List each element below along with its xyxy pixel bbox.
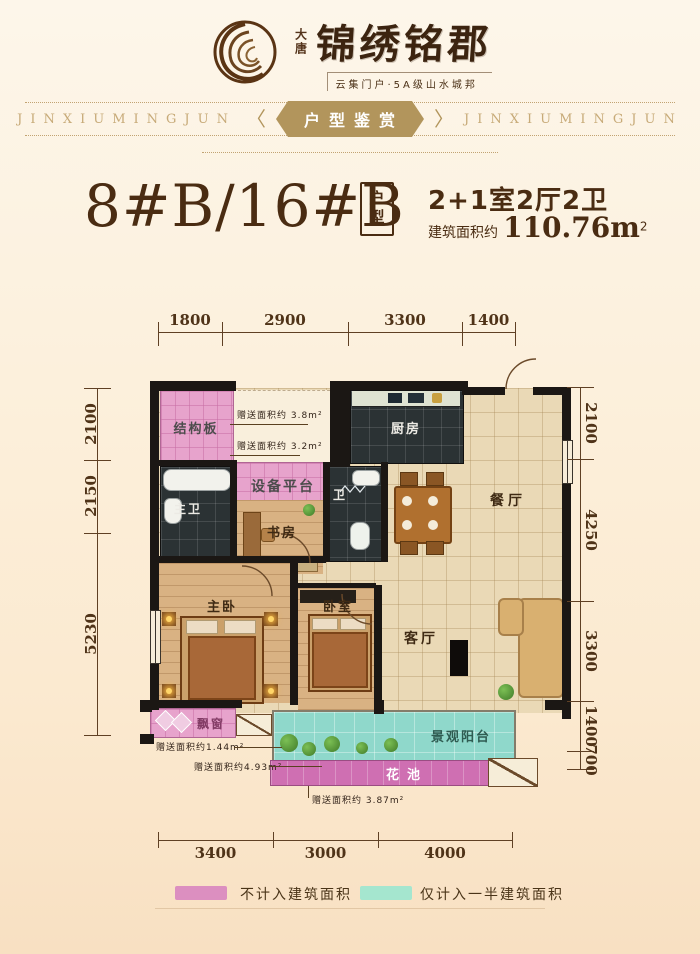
brand-tagline: 云集门户·5A级山水城邦 (327, 72, 492, 91)
room-label-structure-board: 结构板 (160, 418, 232, 437)
dimension-label: 3000 (273, 844, 378, 862)
annotation-leader-line (230, 455, 300, 456)
brand-name: 锦绣铭郡 (313, 12, 493, 70)
kitchen-appliance (432, 393, 442, 403)
dining-chair (400, 541, 418, 555)
dimension-label: 3400 (158, 844, 273, 862)
dimension-line (580, 387, 581, 770)
room-label-bath: 卫 (330, 486, 350, 503)
phoenix-swirl-logo-icon (209, 16, 281, 88)
wall-segment (462, 387, 505, 395)
dining-chair (426, 472, 444, 486)
legend-swatch-teal (360, 886, 412, 900)
kitchen-counter (352, 391, 460, 407)
living-plant (498, 684, 514, 700)
window (150, 610, 161, 664)
lamp-glow (268, 688, 274, 694)
brand-seal: 大唐 (293, 28, 310, 56)
annotation-leader-line (234, 747, 282, 748)
annotation-gift-area: 赠送面积约 3.87m² (312, 793, 404, 806)
dimension-label: 4250 (584, 494, 600, 566)
room-label-living: 客厅 (386, 628, 456, 648)
kitchen-sink (388, 393, 402, 403)
dining-table (394, 486, 452, 544)
dining-chair (426, 541, 444, 555)
wall-segment (150, 556, 326, 563)
dimension-tick (84, 533, 111, 534)
area-line: 建筑面积约 110.76m2 (428, 211, 648, 244)
balcony-plant (302, 742, 316, 756)
legend-swatch-pink (175, 886, 227, 900)
bed-pillow (312, 618, 338, 630)
balcony-plant (324, 736, 340, 752)
wall-segment (562, 387, 571, 719)
wall-segment (296, 583, 376, 588)
dimension-tick (567, 459, 594, 460)
ac-platform-box (236, 714, 272, 736)
room-label-view-balcony: 景观阳台 (418, 726, 504, 745)
wall-segment (150, 381, 236, 391)
floorplan-poster: 大唐 锦绣铭郡 云集门户·5A级山水城邦 JINXIUMINGJUN 〈 户型鉴… (0, 0, 700, 954)
lamp-glow (166, 616, 172, 622)
master-bed-pillow (186, 620, 218, 634)
dimension-tick (84, 735, 111, 736)
dimension-label: 1800 (158, 311, 222, 329)
section-badge: 户型鉴赏 (276, 101, 424, 137)
legend-divider (155, 908, 545, 909)
sofa-chaise (498, 598, 524, 636)
wall-segment (350, 381, 468, 390)
wall-segment (330, 381, 350, 467)
dimension-label: 5230 (82, 598, 98, 670)
bath-sink (352, 470, 380, 486)
bathtub (163, 469, 231, 491)
dimension-label: 2900 (222, 311, 348, 329)
legend-label-half-counted: 仅计入一半建筑面积 (420, 884, 564, 904)
area-prefix: 建筑面积约 (428, 225, 498, 241)
wall-segment (150, 700, 242, 708)
area-superscript: 2 (640, 220, 648, 234)
section-banner: JINXIUMINGJUN 〈 户型鉴赏 〉 JINXIUMINGJUN (0, 102, 700, 136)
annotation-gift-area: 赠送面积约1.44m² (156, 740, 244, 753)
room-label-flower-bed: 花池 (372, 764, 442, 783)
lamp-glow (268, 616, 274, 622)
dimension-label: 2150 (82, 460, 98, 532)
room-label-bay-window: 飘窗 (186, 715, 236, 732)
left-chevron-icon: 〈 (246, 109, 266, 129)
balcony-plant (356, 742, 368, 754)
study-plant (303, 504, 315, 516)
annotation-gift-area: 赠送面积约 3.8m² (237, 408, 323, 421)
dimension-label: 2100 (584, 387, 600, 459)
dimension-tick (515, 322, 516, 346)
room-label-master-bedroom: 主卧 (190, 596, 254, 615)
sub-dotted-line (202, 152, 498, 153)
dimension-tick (512, 832, 513, 848)
dimension-line (158, 840, 512, 841)
gift-open-zone (233, 390, 335, 463)
brand-header: 大唐 锦绣铭郡 云集门户·5A级山水城邦 (0, 12, 700, 91)
room-label-master-bath: 主卫 (162, 500, 214, 517)
banner-left-text: JINXIUMINGJUN (17, 112, 236, 127)
dimension-tick (567, 601, 594, 602)
annotation-leader-line (230, 424, 308, 425)
room-label-bedroom: 卧室 (304, 596, 372, 615)
right-chevron-icon: 〉 (434, 109, 454, 129)
room-label-study: 书房 (252, 522, 312, 541)
wall-segment (381, 462, 388, 562)
dining-plate (402, 496, 412, 506)
wall-segment (374, 700, 384, 714)
lamp-glow (166, 688, 172, 694)
balcony-plant (384, 738, 398, 752)
legend-label-not-counted: 不计入建筑面积 (240, 884, 352, 904)
annotation-leader-line (308, 786, 309, 798)
wall-segment (140, 700, 152, 712)
brand-text-block: 大唐 锦绣铭郡 云集门户·5A级山水城邦 (293, 12, 492, 91)
wall-segment (374, 585, 382, 710)
annotation-leader-line (270, 766, 322, 767)
room-label-kitchen: 厨房 (350, 418, 462, 437)
master-bed-pillow (224, 620, 256, 634)
dining-chair (400, 472, 418, 486)
sofa (518, 598, 564, 698)
dining-plate (428, 496, 438, 506)
bed-duvet (312, 632, 368, 688)
banner-right-text: JINXIUMINGJUN (464, 112, 683, 127)
dimension-label: 700 (584, 724, 600, 796)
ac-platform-box (488, 758, 538, 787)
bed-pillow (340, 618, 366, 630)
dining-plate (402, 520, 412, 530)
kitchen-stove (408, 393, 424, 403)
unit-name: 8#B/16#B (84, 172, 405, 240)
type-box-label: 户型 (360, 182, 394, 236)
bath-toilet (350, 522, 370, 550)
area-value: 110.76m (503, 211, 640, 244)
dimension-label: 3300 (348, 311, 462, 329)
dimension-label: 2100 (82, 388, 98, 460)
wall-segment (156, 460, 234, 466)
dimension-label: 1400 (462, 311, 515, 329)
wall-segment (140, 734, 154, 744)
window (562, 440, 573, 484)
dimension-label: 4000 (378, 844, 512, 862)
balcony-plant (280, 734, 298, 752)
annotation-gift-area: 赠送面积约 3.2m² (237, 439, 323, 452)
dining-plate (428, 520, 438, 530)
room-label-equipment-platform: 设备平台 (235, 476, 331, 496)
room-label-dining: 餐厅 (468, 490, 548, 510)
master-bed-duvet (188, 636, 256, 700)
dimension-label: 3300 (584, 615, 600, 687)
